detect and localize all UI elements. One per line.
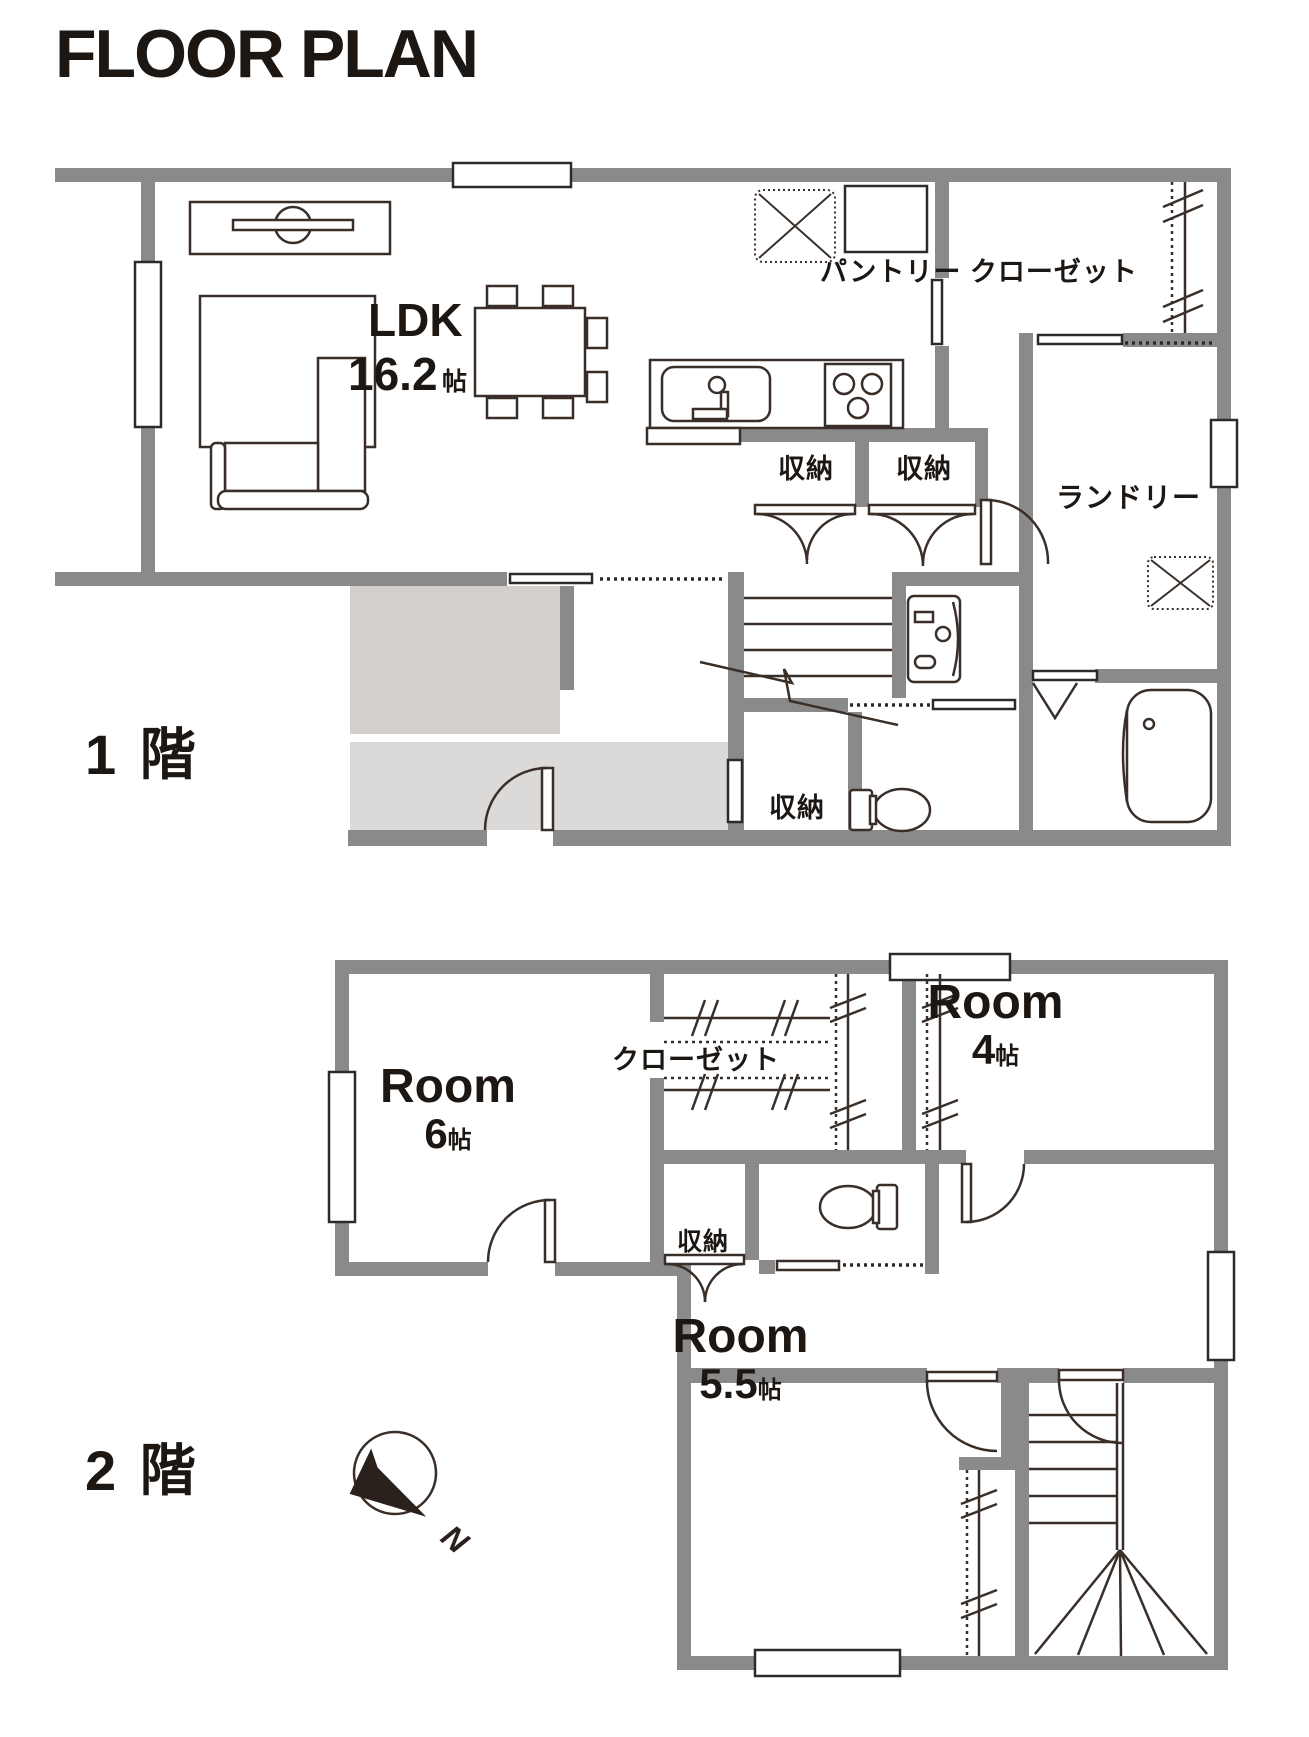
vanity-icon — [915, 656, 935, 668]
toilet-icon — [870, 796, 876, 824]
window — [453, 163, 571, 187]
window — [329, 1072, 355, 1222]
toilet-bowl-icon — [874, 789, 930, 831]
compass-north-label: N — [435, 1518, 477, 1561]
laundry-label: ランドリー — [1056, 476, 1201, 516]
room55-closet — [961, 1470, 997, 1656]
chair-icon — [543, 286, 573, 306]
tv-icon — [233, 220, 353, 230]
dining-table-icon — [475, 308, 585, 396]
window — [135, 262, 161, 427]
chair-icon — [487, 398, 517, 418]
entrance-area — [350, 586, 728, 830]
room4-label: Room 4帖 — [918, 978, 1073, 1072]
door-swing — [927, 1381, 997, 1451]
door-swing — [923, 514, 973, 564]
door-swing — [986, 500, 1048, 564]
window — [1211, 420, 1237, 487]
door-swing — [488, 1200, 550, 1262]
sofa-seat-icon — [225, 443, 318, 491]
vanity-icon — [908, 596, 960, 682]
door-leaf — [927, 1372, 997, 1381]
kitchen-counter-icon — [647, 428, 740, 444]
floor-plan-page: { "title": "FLOOR PLAN", "colors": { "wa… — [0, 0, 1309, 1737]
door-frame — [869, 505, 975, 514]
storage2-label: 収納 — [896, 447, 952, 486]
folding-door — [1033, 683, 1077, 718]
pantry-closet-label: パントリー クローゼット — [820, 250, 1138, 289]
stove-icon — [825, 364, 891, 426]
door-frame — [755, 505, 855, 514]
door-leaf — [981, 500, 991, 564]
room55-label: Room 5.5帖 — [658, 1312, 823, 1406]
sliding-door — [728, 760, 742, 822]
toilet-floor1 — [850, 789, 930, 831]
stairs-floor2 — [1029, 1383, 1207, 1656]
hanger-rod — [1163, 182, 1203, 333]
sofa-back-icon — [218, 491, 368, 509]
ldk-area: 16.2 帖 — [348, 347, 467, 401]
toilet-floor2 — [820, 1185, 897, 1229]
door-swing — [871, 514, 923, 566]
sink-icon — [693, 409, 727, 419]
toilet-bowl-icon — [820, 1186, 876, 1228]
sliding-door — [1033, 671, 1097, 680]
compass-icon: N — [348, 1432, 476, 1561]
window — [1208, 1252, 1234, 1360]
door-swing — [966, 1164, 1024, 1222]
floor2-name: 2 階 — [85, 1426, 200, 1507]
ldk-name: LDK — [368, 294, 463, 346]
room6-label: Room 6帖 — [378, 1062, 518, 1156]
window — [755, 1650, 900, 1676]
storage-under-stairs-label: 収納 — [769, 786, 825, 825]
door-swing — [1059, 1380, 1122, 1443]
sliding-door — [933, 700, 1015, 709]
laundry — [1148, 557, 1213, 609]
ldk-label: LDK — [368, 293, 463, 347]
floor1-name: 1 階 — [85, 710, 200, 791]
bathroom — [1123, 690, 1211, 822]
door-swing — [757, 514, 807, 564]
sliding-door — [932, 280, 942, 344]
bathtub-icon — [1127, 690, 1211, 822]
chair-icon — [587, 318, 607, 348]
door-leaf — [545, 1200, 555, 1262]
toilet-tank-icon — [850, 790, 872, 830]
door-leaf — [962, 1164, 971, 1222]
door-leaf — [542, 768, 553, 830]
chair-icon — [487, 286, 517, 306]
toilet-icon — [873, 1191, 879, 1223]
washroom — [908, 596, 960, 682]
door-leaf — [1059, 1370, 1123, 1380]
chair-icon — [543, 398, 573, 418]
closet-label: クローゼット — [612, 1038, 780, 1077]
vanity-icon — [915, 612, 933, 622]
page-title: FLOOR PLAN — [55, 20, 477, 88]
sliding-door — [510, 574, 592, 583]
door-swing — [807, 514, 853, 560]
chair-icon — [587, 372, 607, 402]
sliding-door — [777, 1261, 839, 1270]
storage1-label: 収納 — [778, 447, 834, 486]
storage-floor2-label: 収納 — [677, 1222, 729, 1258]
door-swing — [705, 1264, 743, 1302]
shelf — [845, 186, 927, 252]
sliding-door — [1038, 335, 1122, 344]
